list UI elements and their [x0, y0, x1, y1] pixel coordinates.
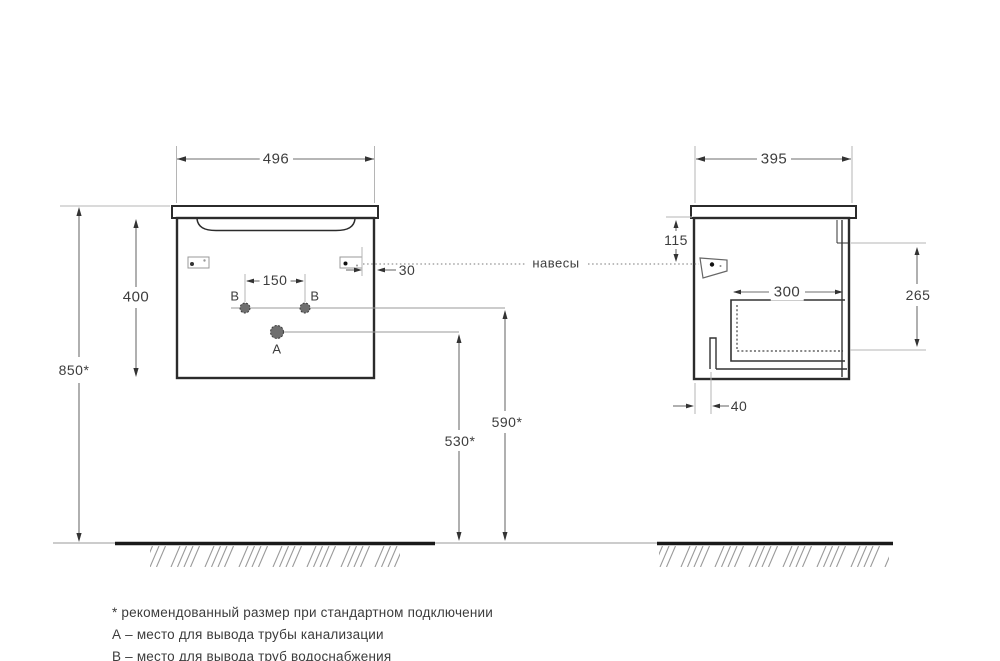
dim-inner-height: 265 — [903, 287, 934, 303]
dim-drawer-depth: 300 — [771, 284, 804, 301]
floor-hatch-right — [659, 546, 889, 567]
hangers-callout-label: навесы — [531, 256, 580, 271]
note-hole-b: В – место для вывода труб водоснабжения — [112, 649, 391, 661]
dim-drain-outlet-height: 530* — [442, 433, 479, 449]
water-hole-b-right — [300, 303, 310, 313]
hole-b-left-label: B — [229, 289, 240, 304]
dim-front-width: 496 — [260, 151, 293, 168]
drawing-linework — [0, 0, 1000, 661]
water-hole-b-left — [240, 303, 250, 313]
mounting-plate-icon-right — [340, 257, 362, 268]
dim-side-depth: 395 — [758, 151, 791, 168]
drain-hole-a — [271, 326, 284, 339]
front-countertop — [172, 206, 378, 218]
dim-toe-offset: 40 — [728, 398, 751, 414]
side-countertop — [691, 206, 856, 218]
note-recommended-size: * рекомендованный размер при стандартном… — [112, 605, 493, 620]
note-hole-a: А – место для вывода трубы канализации — [112, 627, 384, 642]
front-view — [172, 206, 505, 378]
mounting-plate-icon-left — [188, 257, 209, 268]
ground — [53, 543, 893, 567]
floor-hatch-left — [150, 546, 400, 567]
dim-hanger-drop: 115 — [661, 232, 691, 248]
hole-a-label: A — [271, 342, 282, 357]
dim-hanger-inset: 30 — [396, 262, 419, 278]
dim-holes-spacing: 150 — [260, 272, 291, 288]
dim-mount-height: 850* — [56, 362, 93, 378]
dim-water-outlet-height: 590* — [489, 414, 526, 430]
hole-b-right-label: B — [309, 289, 320, 304]
dim-cabinet-height: 400 — [120, 289, 153, 306]
technical-drawing-page: 496 395 400 850* 150 30 115 300 265 590*… — [0, 0, 1000, 661]
